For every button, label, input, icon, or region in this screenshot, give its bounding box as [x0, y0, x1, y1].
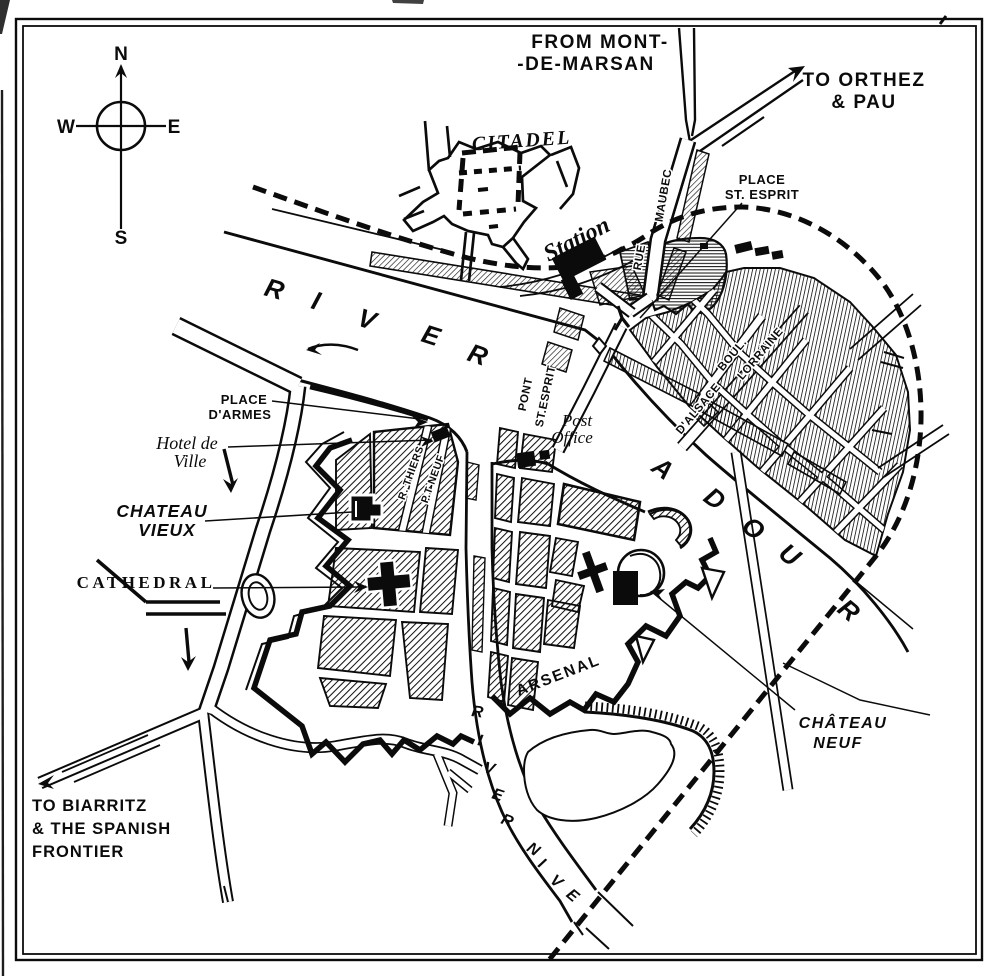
- svg-text:& PAU: & PAU: [831, 92, 896, 113]
- svg-text:S: S: [115, 228, 128, 249]
- svg-text:W: W: [57, 117, 75, 138]
- svg-text:NEUF: NEUF: [813, 735, 863, 752]
- svg-text:Office: Office: [551, 428, 593, 447]
- svg-text:Ville: Ville: [174, 451, 207, 471]
- svg-text:VIEUX: VIEUX: [138, 520, 196, 540]
- svg-text:Hotel de: Hotel de: [155, 433, 217, 453]
- svg-text:CATHEDRAL: CATHEDRAL: [77, 573, 216, 592]
- svg-text:ST. ESPRIT: ST. ESPRIT: [725, 187, 799, 202]
- svg-text:FRONTIER: FRONTIER: [32, 843, 124, 861]
- svg-text:PLACE: PLACE: [221, 392, 268, 407]
- svg-text:CHATEAU: CHATEAU: [116, 501, 207, 521]
- svg-text:TO ORTHEZ: TO ORTHEZ: [803, 70, 926, 91]
- svg-text:& THE SPANISH: & THE SPANISH: [32, 820, 171, 838]
- svg-text:FROM MONT-: FROM MONT-: [531, 32, 668, 53]
- svg-text:TO BIARRITZ: TO BIARRITZ: [32, 797, 147, 815]
- svg-text:-DE-MARSAN: -DE-MARSAN: [517, 54, 654, 75]
- svg-text:D'ARMES: D'ARMES: [209, 407, 272, 422]
- svg-text:E: E: [168, 117, 181, 138]
- svg-text:PLACE: PLACE: [739, 172, 786, 187]
- svg-text:CHÂTEAU: CHÂTEAU: [799, 713, 888, 732]
- svg-text:N: N: [114, 44, 128, 65]
